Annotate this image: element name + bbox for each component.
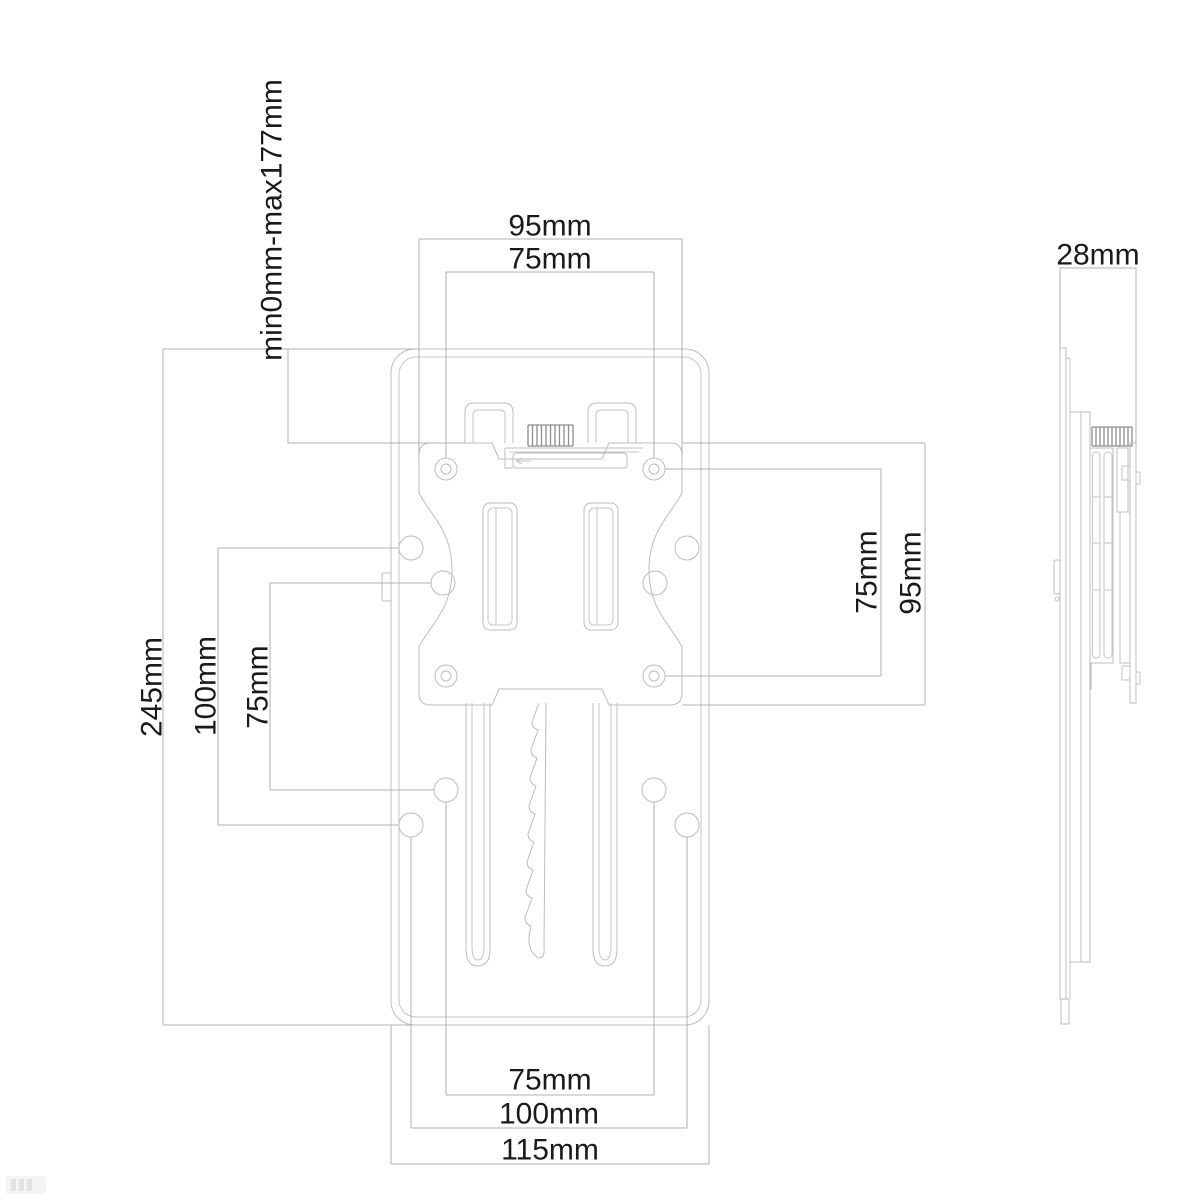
- dim-label-bottom-75: 75mm: [508, 1064, 591, 1097]
- side-view: [1054, 348, 1140, 1024]
- technical-drawing-page: 95mm 75mm min0mm-max177mm 245mm 100mm 75…: [0, 0, 1200, 1200]
- dim-label-width-outer: 95mm: [508, 210, 591, 243]
- dimension-labels: 95mm 75mm min0mm-max177mm 245mm 100mm 75…: [136, 79, 1140, 1166]
- dim-label-bottom-115: 115mm: [501, 1134, 599, 1167]
- watermark-icon: [6, 1176, 46, 1194]
- dim-label-bottom-100: 100mm: [499, 1098, 599, 1131]
- vesa-adapter-plate: [419, 403, 682, 705]
- side-thumbwheel-knurl: [1092, 427, 1132, 446]
- back-plate-outline: [391, 349, 709, 1025]
- side-front-bar: [1130, 443, 1136, 703]
- dim-label-vesa-vertical-75: 75mm: [851, 530, 884, 613]
- dim-label-hole-spacing-75: 75mm: [242, 645, 275, 728]
- dim-line-right-75: [665, 469, 881, 676]
- adapter-center-slots: [483, 503, 618, 630]
- front-view: [382, 349, 709, 1025]
- dim-line-right-95: [682, 443, 925, 705]
- dim-line-travel-range: [288, 349, 465, 443]
- side-mid-layer: [1069, 412, 1090, 962]
- dim-label-hole-spacing-100: 100mm: [190, 636, 223, 736]
- slide-rails: [466, 703, 617, 966]
- side-clip: [382, 573, 391, 601]
- clamp-rail: [505, 448, 643, 468]
- thumbwheel-knurl: [528, 425, 573, 446]
- ratchet-strip: [525, 703, 546, 958]
- side-back-plate: [1054, 348, 1090, 1024]
- dim-label-side-depth: 28mm: [1056, 239, 1139, 272]
- dim-label-plate-vertical-95: 95mm: [895, 531, 928, 614]
- dim-line-left-75: [270, 583, 434, 790]
- side-clip-profile: [1054, 560, 1060, 594]
- vesa-adapter-drawing: 95mm 75mm min0mm-max177mm 245mm 100mm 75…: [0, 0, 1200, 1200]
- dim-line-bottom-75: [446, 802, 654, 1095]
- back-plate: [382, 349, 709, 1025]
- vesa-screw-holes: [435, 458, 665, 687]
- dim-line-side-28: [1060, 268, 1136, 443]
- dim-label-travel-range: min0mm-max177mm: [256, 79, 289, 361]
- adapter-outline: [419, 443, 682, 705]
- dim-label-plate-height: 245mm: [136, 637, 169, 737]
- side-adapter-body: [1090, 427, 1140, 703]
- dim-label-width-inner: 75mm: [508, 243, 591, 276]
